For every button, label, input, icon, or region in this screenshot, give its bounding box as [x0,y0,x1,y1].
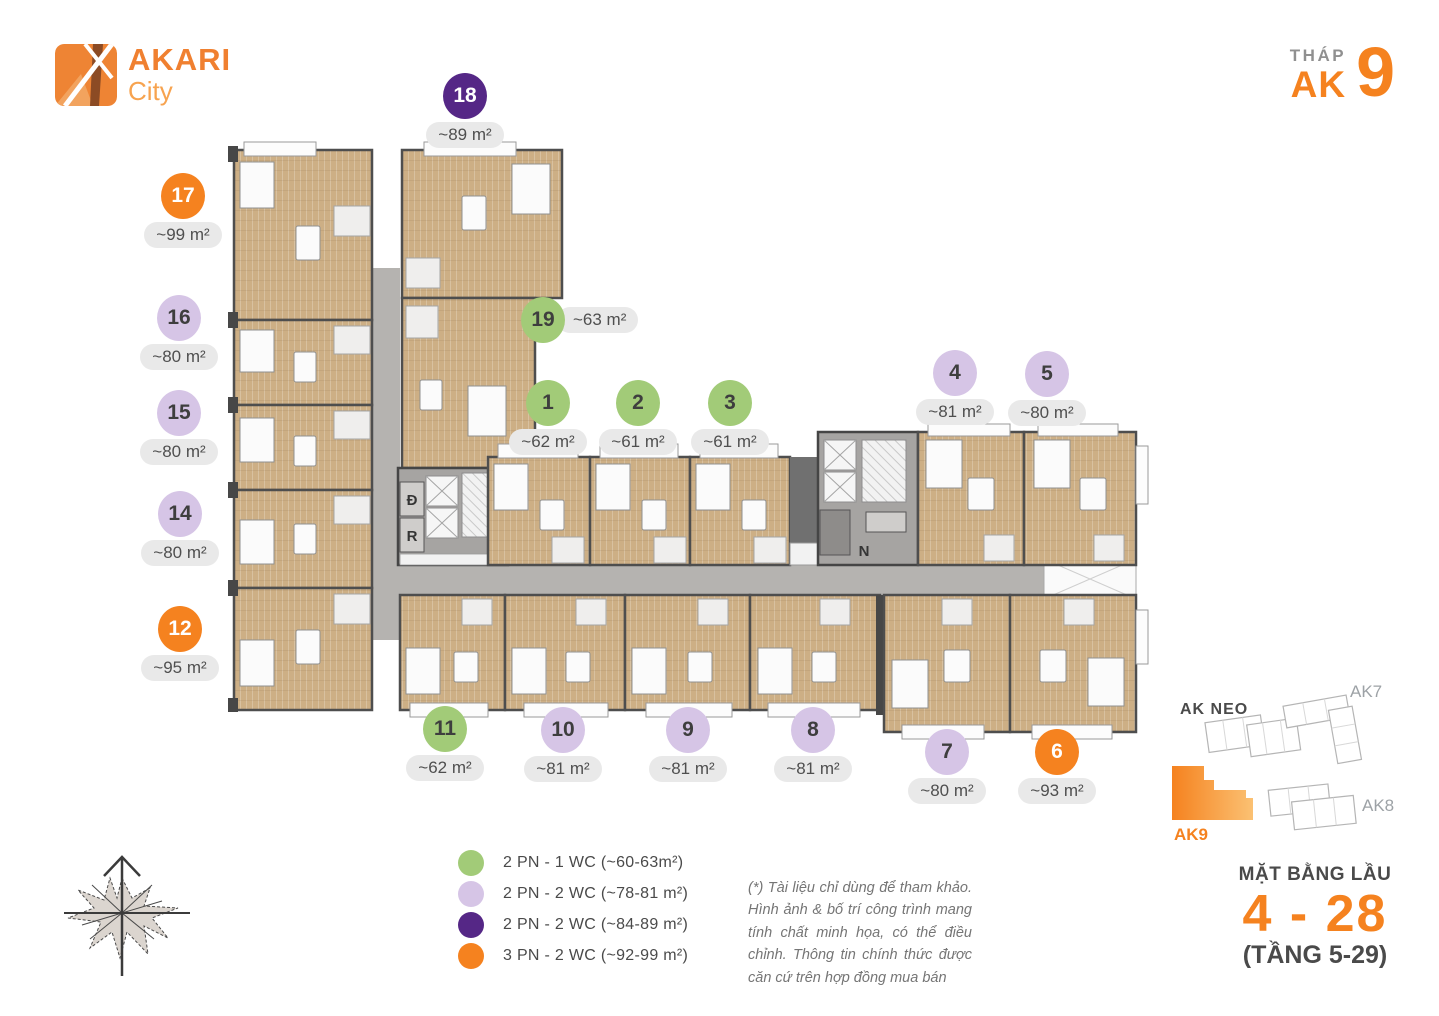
unit-number: 5 [1025,351,1069,397]
legend-row: 2 PN - 2 WC (~84-89 m²) [458,910,688,940]
unit-area: ~81 m² [524,756,601,782]
unit-badge-7: 7 ~80 m² [892,729,1002,804]
unit-area: ~62 m² [406,755,483,781]
unit-number: 15 [157,390,201,436]
unit-badge-15: 15 ~80 m² [124,390,234,465]
unit-area: ~99 m² [144,222,221,248]
unit-badge-5: 5 ~80 m² [992,351,1102,426]
compass-rose [64,857,190,976]
core-label-d: Đ [407,492,418,509]
unit-badge-14: 14 ~80 m² [125,491,235,566]
legend-dot-dark-purple [458,912,484,938]
unit-number: 19 [521,297,565,343]
legend-label: 2 PN - 1 WC (~60-63m²) [503,854,683,872]
brand-subtitle: City [128,77,231,107]
unit-area: ~80 m² [141,540,218,566]
unit-area: ~80 m² [140,439,217,465]
right-bottom-units [884,595,1148,739]
minimap-label-ak7: AK7 [1350,682,1382,702]
unit-badge-19: 19 ~63 m² [521,297,638,343]
minimap-label-ak-neo: AK NEO [1180,701,1248,719]
legend-label: 3 PN - 2 WC (~92-99 m²) [503,947,688,965]
floor-info-note: (TẦNG 5-29) [1230,942,1400,968]
unit-number: 3 [708,380,752,426]
akari-logo: AKARI City [55,44,231,107]
unit-area: ~80 m² [1008,400,1085,426]
tower-ak-label: AK [1291,66,1346,105]
disclaimer-text: (*) Tài liệu chỉ dùng để tham khảo. Hình… [748,877,972,989]
left-wing-units [228,142,372,712]
unit-area: ~63 m² [557,307,638,333]
unit-badge-18: 18 ~89 m² [410,73,520,148]
legend-row: 2 PN - 1 WC (~60-63m²) [458,848,688,878]
unit-number: 14 [158,491,202,537]
unit-number: 18 [443,73,487,119]
minimap-label-ak9: AK9 [1174,825,1208,845]
core-east: N [818,432,918,565]
floor-info: MẶT BẰNG LẦU 4 - 28 (TẦNG 5-29) [1230,864,1400,968]
unit-number: 1 [526,380,570,426]
unit-badge-12: 12 ~95 m² [125,606,235,681]
floor-info-title: MẶT BẰNG LẦU [1230,864,1400,886]
tower-title: THÁP AK 9 [1290,40,1395,105]
legend-row: 3 PN - 2 WC (~92-99 m²) [458,941,688,971]
unit-badge-16: 16 ~80 m² [124,295,234,370]
unit-area: ~61 m² [599,429,676,455]
akari-logo-icon [55,44,117,106]
bottom-units [400,595,884,717]
unit-badge-8: 8 ~81 m² [758,707,868,782]
unit-badge-3: 3 ~61 m² [675,380,785,455]
unit-area: ~95 m² [141,655,218,681]
tower-number: 9 [1356,40,1395,104]
unit-number: 12 [158,606,202,652]
unit-number: 10 [541,707,585,753]
floor-info-range: 4 - 28 [1230,886,1400,942]
unit-area: ~81 m² [649,756,726,782]
unit-number: 6 [1035,729,1079,775]
unit-number: 7 [925,729,969,775]
unit-badge-17: 17 ~99 m² [128,173,238,248]
brand-title: AKARI [128,44,231,75]
unit-area: ~93 m² [1018,778,1095,804]
unit-number: 11 [423,706,467,752]
legend-dot-light-purple [458,881,484,907]
legend-row: 2 PN - 2 WC (~78-81 m²) [458,879,688,909]
legend-dot-green [458,850,484,876]
unit-number: 8 [791,707,835,753]
unit-area: ~80 m² [140,344,217,370]
core-label-r: R [407,528,418,545]
minimap-ak9-shape [1172,766,1253,820]
unit-area: ~89 m² [426,122,503,148]
tower-thap-label: THÁP [1290,46,1346,66]
unit-area: ~80 m² [908,778,985,804]
unit-number: 4 [933,350,977,396]
legend-label: 2 PN - 2 WC (~84-89 m²) [503,916,688,934]
unit-area: ~62 m² [509,429,586,455]
unit-area: ~81 m² [916,399,993,425]
mid-top-units [488,444,818,565]
legend-label: 2 PN - 2 WC (~78-81 m²) [503,885,688,903]
unit-badge-9: 9 ~81 m² [633,707,743,782]
unit-badge-10: 10 ~81 m² [508,707,618,782]
unit-badge-11: 11 ~62 m² [390,706,500,781]
unit-number: 2 [616,380,660,426]
legend: 2 PN - 1 WC (~60-63m²) 2 PN - 2 WC (~78-… [458,848,688,972]
right-top-units [918,424,1148,565]
unit-area: ~81 m² [774,756,851,782]
legend-dot-orange [458,943,484,969]
unit-number: 9 [666,707,710,753]
unit-area: ~61 m² [691,429,768,455]
unit-number: 16 [157,295,201,341]
unit-badge-6: 6 ~93 m² [1002,729,1112,804]
core-label-n: N [859,543,870,560]
unit-number: 17 [161,173,205,219]
minimap-label-ak8: AK8 [1362,796,1394,816]
